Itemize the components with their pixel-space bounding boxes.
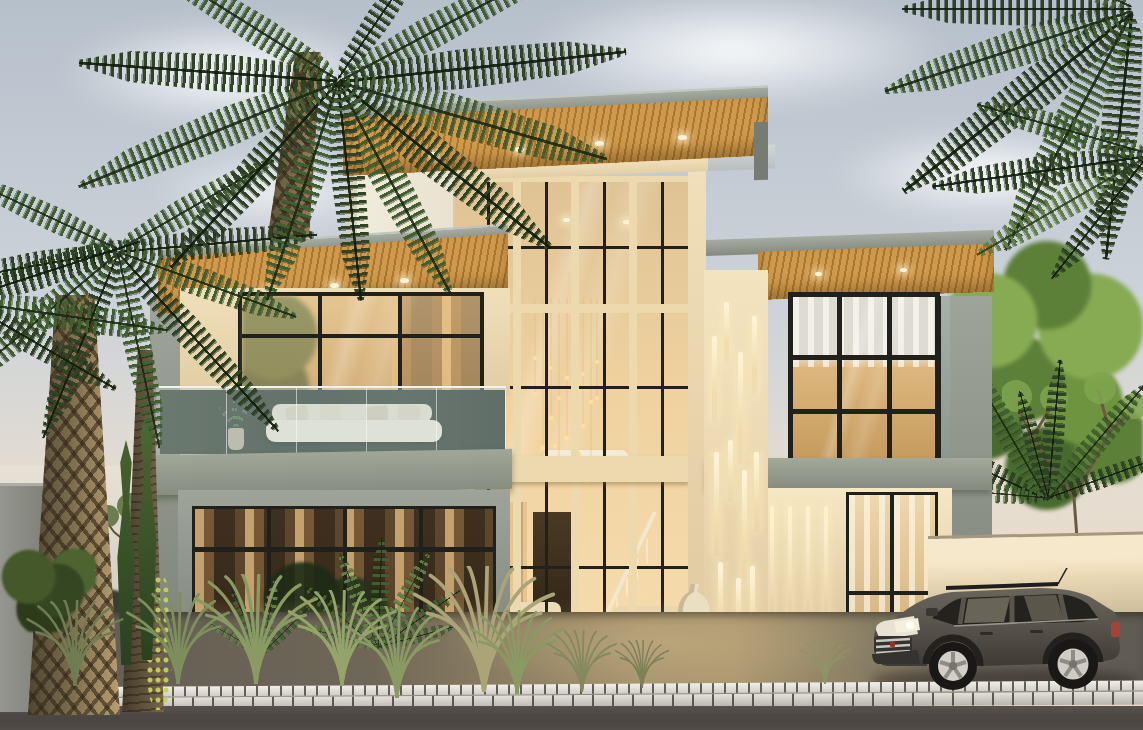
led-slit (724, 302, 729, 366)
suv-window-reflection (964, 597, 1010, 623)
led-slit (754, 452, 759, 532)
window-frame (603, 182, 606, 654)
corner-window (788, 292, 940, 466)
balustrade-joint (436, 388, 437, 456)
grass-clump (796, 640, 854, 684)
suv-headlight-lamp (906, 621, 914, 629)
window-transom (195, 547, 493, 552)
window-mullion (242, 334, 480, 338)
roof-downlight (900, 268, 907, 272)
suv-brand-emblem (890, 642, 895, 647)
suv-taillight (1111, 622, 1120, 637)
led-slit (742, 470, 747, 582)
balcony-glass-balustrade (156, 386, 506, 458)
suv-rear-wheel (1048, 639, 1098, 689)
balcony-slab (150, 449, 512, 495)
atrium-mullion (571, 182, 579, 654)
roof-downlight (400, 278, 409, 283)
road (0, 706, 1143, 730)
suv (860, 568, 1138, 696)
suv-antenna (1058, 568, 1068, 584)
window-mullion (793, 409, 935, 414)
suv-door-handle (1030, 630, 1043, 633)
led-slit (712, 336, 717, 422)
suv-mirror (926, 608, 938, 616)
grass-clump (610, 640, 674, 688)
led-slit (728, 440, 733, 502)
led-slit (738, 352, 743, 464)
window-mullion (793, 355, 935, 360)
atrium-mullion (629, 182, 637, 654)
roof-downlight (595, 141, 604, 146)
window-frame (661, 182, 664, 654)
suv-front-wheel (929, 642, 977, 690)
roof-downlight (815, 272, 822, 276)
balustrade-joint (296, 388, 297, 456)
led-slit (752, 316, 757, 396)
glass-reflection (793, 297, 935, 461)
grass-clump (20, 600, 130, 686)
roof-downlight (678, 135, 687, 140)
window-mullion (887, 297, 892, 461)
balustrade-joint (366, 388, 367, 456)
suv-door-handle (980, 632, 993, 635)
suv-roof-rails (946, 584, 1058, 588)
scene-architectural-render (0, 0, 1143, 730)
window-mullion (837, 297, 842, 461)
ceiling-downlight (563, 218, 570, 222)
led-slit (714, 452, 719, 556)
balustrade-joint (226, 388, 227, 456)
upper-roof-end-cap (754, 122, 768, 181)
